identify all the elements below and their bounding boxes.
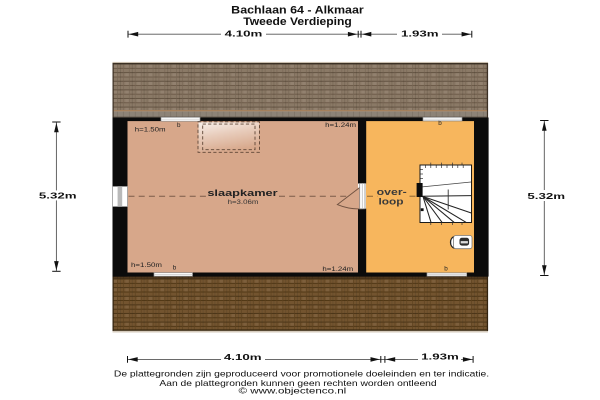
svg-text:slaapkamer: slaapkamer [207, 189, 278, 199]
svg-text:4.10m: 4.10m [225, 30, 263, 39]
svg-text:De plattegronden zijn geproduc: De plattegronden zijn geproduceerd voor … [114, 370, 489, 379]
svg-text:h=1.24m: h=1.24m [325, 122, 356, 129]
svg-text:Tweede Verdieping: Tweede Verdieping [243, 16, 352, 27]
svg-text:h=1.50m: h=1.50m [131, 262, 162, 269]
svg-text:h=1.24m: h=1.24m [322, 266, 353, 273]
svg-text:b: b [173, 265, 177, 272]
svg-text:5.32m: 5.32m [39, 192, 77, 201]
svg-text:© www.objectenco.nl: © www.objectenco.nl [239, 387, 347, 396]
svg-text:b: b [438, 120, 442, 127]
svg-text:1.93m: 1.93m [421, 353, 459, 362]
svg-text:h=3.06m: h=3.06m [228, 198, 259, 205]
svg-text:Bachlaan 64 - Alkmaar: Bachlaan 64 - Alkmaar [231, 4, 364, 16]
svg-text:b: b [444, 266, 448, 273]
svg-text:1.93m: 1.93m [401, 30, 439, 39]
svg-text:4.10m: 4.10m [224, 353, 262, 362]
svg-text:b: b [177, 122, 181, 129]
svg-text:h=1.50m: h=1.50m [135, 126, 166, 133]
svg-text:5.32m: 5.32m [527, 192, 565, 201]
svg-text:loop: loop [378, 197, 403, 207]
